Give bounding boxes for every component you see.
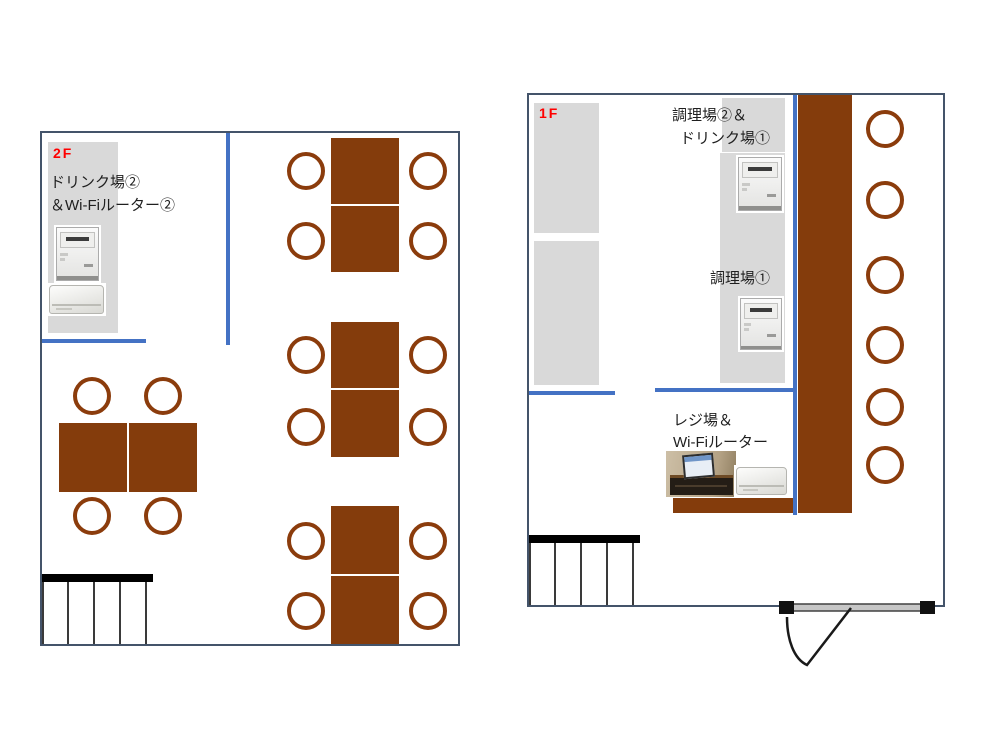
pos-register-image [666, 451, 736, 497]
counter-stool [866, 256, 904, 294]
dining-table [331, 506, 399, 574]
interior-wall-horizontal-2f [42, 339, 146, 343]
wifi-router-image [47, 283, 106, 316]
chair [409, 152, 447, 190]
floor-plan-diagram: 2F ドリンク場② ＆Wi-Fiルーター② [0, 0, 1000, 750]
chair [287, 592, 325, 630]
dining-table [129, 423, 197, 492]
receipt-printer-image [738, 296, 784, 352]
kitchen2-drink1-line2: ドリンク場① [672, 127, 770, 150]
drink-area-label-line2: ＆Wi-Fiルーター② [50, 194, 175, 217]
kitchen2-drink1-label: 調理場②＆ ドリンク場① [672, 104, 770, 150]
floor-label-2f: 2F [53, 145, 73, 161]
interior-wall-left-1f [529, 391, 615, 395]
counter [798, 95, 852, 513]
dining-table [331, 390, 399, 457]
chair [73, 497, 111, 535]
register-counter [673, 498, 793, 513]
wifi-router-image [734, 465, 789, 497]
floor-label-1f: 1F [539, 105, 559, 121]
chair [409, 592, 447, 630]
door-hinge-left [779, 601, 794, 614]
kitchen2-drink1-line1: 調理場②＆ [672, 104, 770, 127]
counter-stool [866, 181, 904, 219]
receipt-printer-image [736, 155, 784, 213]
door-swing-arc [787, 608, 851, 665]
dining-table [331, 322, 399, 388]
chair [287, 408, 325, 446]
dining-table [59, 423, 127, 492]
gray-zone-1f-upper [534, 103, 599, 233]
chair [287, 152, 325, 190]
door-bar [786, 604, 933, 611]
counter-stool [866, 326, 904, 364]
chair [287, 336, 325, 374]
chair [144, 377, 182, 415]
chair [73, 377, 111, 415]
floor-2f-room: 2F ドリンク場② ＆Wi-Fiルーター② [40, 131, 460, 646]
kitchen1-label: 調理場① [710, 267, 770, 290]
chair [287, 522, 325, 560]
entrance-door [770, 595, 955, 680]
chair [409, 408, 447, 446]
stair-landing-bar [529, 535, 640, 543]
gray-zone-1f-lower [534, 241, 599, 385]
chair [409, 222, 447, 260]
chair [287, 222, 325, 260]
counter-stool [866, 388, 904, 426]
door-hinge-right [920, 601, 935, 614]
receipt-printer-image [54, 225, 101, 283]
stair-landing-bar [42, 574, 153, 582]
register-label-line1: レジ場＆ [673, 410, 768, 432]
floor-1f-room: 1F 調理場②＆ ドリンク場① 調理場① [527, 93, 945, 607]
counter-stool [866, 446, 904, 484]
interior-wall-vertical-2f [226, 133, 230, 345]
register-area-label: レジ場＆ Wi-Fiルーター [673, 410, 768, 454]
chair [409, 336, 447, 374]
dining-table [331, 576, 399, 644]
interior-wall-right-1f [655, 388, 795, 392]
dining-table [331, 206, 399, 272]
counter-stool [866, 110, 904, 148]
counter-wall-vertical-1f [793, 95, 797, 515]
dining-table [331, 138, 399, 204]
drink-area-label-line1: ドリンク場② [50, 171, 175, 194]
chair [144, 497, 182, 535]
drink-area-label-2f: ドリンク場② ＆Wi-Fiルーター② [50, 171, 175, 217]
chair [409, 522, 447, 560]
